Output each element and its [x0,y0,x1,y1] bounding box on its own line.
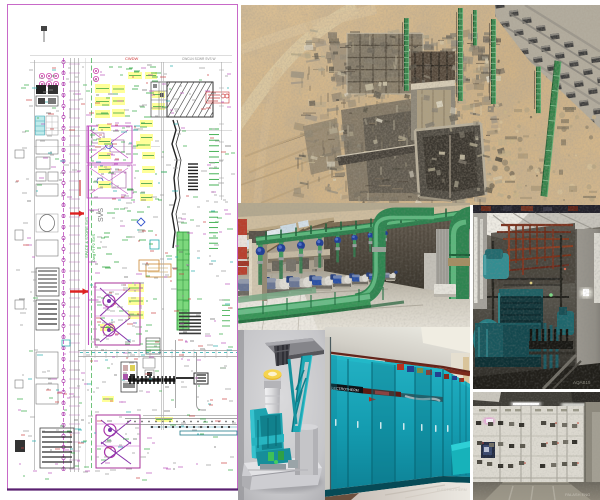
svg-text:CWCLN SCWR SVS W: CWCLN SCWR SVS W [182,57,215,61]
svg-text:ELECTROTHERM: ELECTROTHERM [437,488,467,492]
svg-text:CWDW: CWDW [125,56,139,61]
svg-text:SVS: SVS [98,208,105,222]
svg-text:Dwg PI P2 SVS: Dwg PI P2 SVS [91,234,96,262]
